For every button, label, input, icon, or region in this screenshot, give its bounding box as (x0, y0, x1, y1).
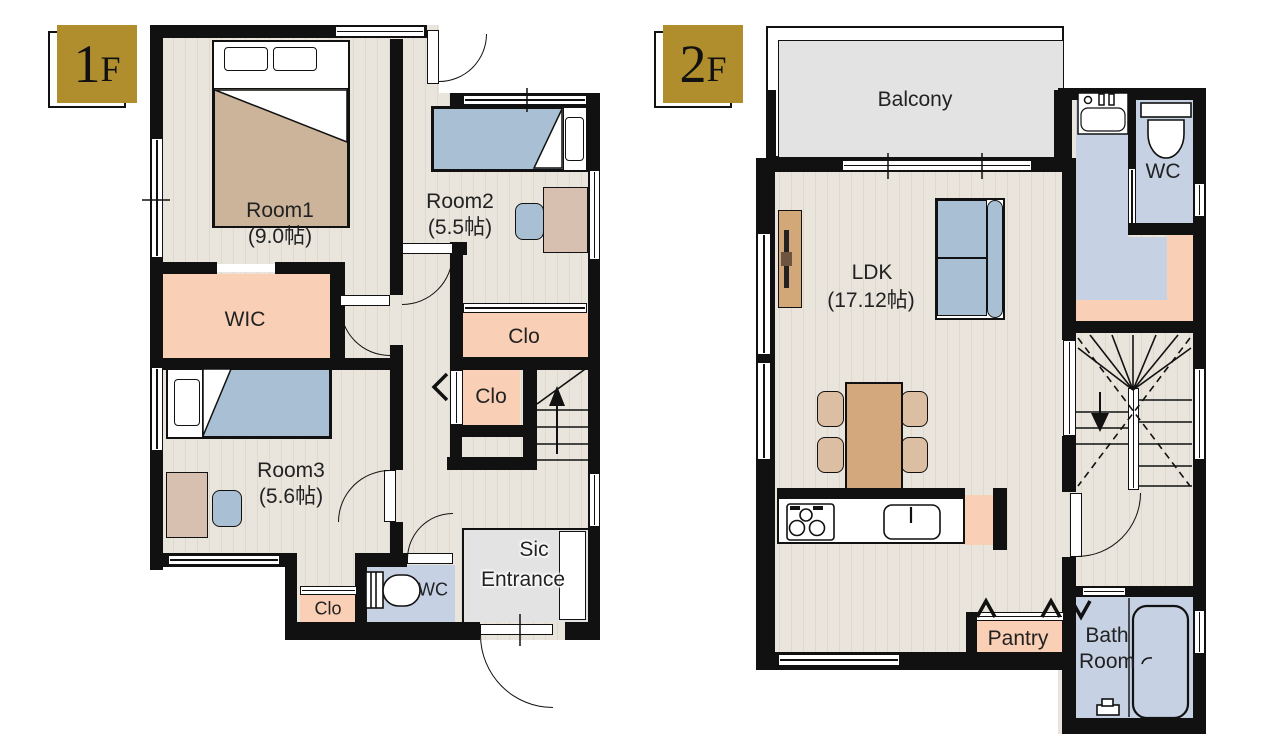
window (842, 160, 1032, 171)
bed-double-pillow-left (224, 47, 268, 71)
label-clo-hall: Clo (475, 385, 507, 409)
window (1194, 610, 1205, 654)
wall (993, 488, 1007, 550)
stair-left-opening (1063, 340, 1076, 436)
closet-hall-opening (450, 370, 463, 425)
window (1194, 183, 1205, 217)
wall (1062, 436, 1076, 492)
entrance-door-leaf (480, 624, 553, 635)
sofa-cushion-bottom (937, 258, 987, 316)
entrance-door-swing (480, 635, 553, 708)
wall (523, 368, 537, 470)
floor2-badge-suffix: F (706, 51, 726, 87)
label-entrance: Entrance (481, 568, 565, 592)
floor2-badge: 2F (663, 25, 743, 103)
bed-room3-pillow (174, 379, 200, 426)
kitchen-half-wall (777, 488, 965, 497)
bed-room2-blanket (433, 108, 564, 170)
floor1-outside-bottom-left (150, 567, 285, 640)
wall (1128, 223, 1193, 235)
wall (1062, 321, 1205, 333)
back-door-leaf (427, 30, 439, 84)
label-wc-2f: WC (1146, 160, 1181, 184)
chair-room2 (515, 203, 544, 240)
desk-room2 (543, 187, 588, 253)
label-ldk: LDK (852, 261, 893, 285)
wall (162, 262, 217, 274)
kitchen-counter-end (965, 495, 993, 545)
wall (150, 358, 403, 370)
kitchen-counter (777, 497, 965, 544)
window (335, 26, 425, 37)
dining-chair (817, 391, 844, 427)
wic-doorway (217, 264, 275, 272)
wall (1058, 88, 1072, 158)
bed-room3-blanket (202, 367, 330, 437)
window (151, 138, 163, 258)
label-pantry: Pantry (988, 627, 1049, 651)
dining-chair (901, 437, 928, 473)
label-room3-size: (5.6帖) (259, 485, 323, 509)
label-wic: WIC (225, 308, 266, 332)
stair-center-divider (1128, 388, 1139, 490)
wall (1128, 98, 1136, 168)
chair-room3 (212, 490, 242, 527)
dining-chair (901, 391, 928, 427)
wall (766, 90, 776, 158)
desk-room3 (166, 472, 208, 538)
wall (447, 457, 537, 470)
dining-table (845, 382, 903, 490)
washroom-wc-opening (1128, 168, 1136, 228)
closet-washroom-right (1167, 235, 1193, 300)
label-room2: Room2 (426, 190, 494, 214)
room-washroom-upper (1076, 100, 1128, 237)
pantry-opening (976, 612, 1064, 621)
label-room1: Room1 (246, 199, 314, 223)
label-room3: Room3 (257, 459, 325, 483)
label-balcony: Balcony (878, 88, 953, 112)
label-room2-size: (5.5帖) (428, 216, 492, 240)
floor2-badge-number: 2 (679, 37, 706, 91)
window (463, 95, 587, 105)
label-clo-room2: Clo (508, 325, 540, 349)
tv-board (778, 210, 802, 308)
room2-door-leaf (402, 243, 453, 254)
window (757, 362, 771, 460)
wall (453, 242, 467, 255)
entrance-step-line (462, 528, 590, 530)
wall (1062, 557, 1076, 734)
label-ldk-size: (17.12帖) (827, 289, 915, 313)
label-bath-line2: Room (1079, 650, 1135, 674)
label-bath-line1: Bath (1085, 624, 1128, 648)
window (778, 654, 900, 666)
window (151, 367, 163, 451)
room-washroom-lower (1076, 237, 1167, 300)
room1-door-leaf (340, 295, 390, 306)
label-sic: Sic (519, 538, 548, 562)
wall (285, 622, 480, 640)
wall (1062, 718, 1205, 734)
window (168, 555, 280, 565)
closet-room2-opening (463, 303, 587, 313)
sofa-cushion-top (937, 200, 987, 258)
bathroom-door-track (1082, 587, 1126, 596)
window (757, 233, 771, 355)
closet-room3-opening (300, 586, 357, 595)
label-wc-1f: WC (418, 580, 448, 601)
closet-washroom-bottom (1076, 300, 1193, 323)
label-room1-size: (9.0帖) (248, 225, 312, 249)
wall (450, 437, 462, 457)
window (1194, 368, 1205, 460)
dining-chair (817, 437, 844, 473)
floor1-badge: 1F (57, 25, 137, 103)
floorplan-canvas: 1F 2F (0, 0, 1280, 740)
wall (150, 25, 163, 570)
entrance-step-line-v (462, 528, 464, 624)
floor1-badge-number: 1 (73, 37, 100, 91)
sofa-back (987, 200, 1003, 318)
wall (1062, 158, 1076, 340)
bed-double-pillow-right (273, 47, 317, 71)
window (589, 473, 600, 527)
label-clo-room3: Clo (314, 599, 341, 620)
bed-room2-pillow (565, 117, 584, 161)
floor1-badge-suffix: F (100, 51, 120, 87)
window (589, 170, 600, 260)
wall (450, 303, 463, 357)
